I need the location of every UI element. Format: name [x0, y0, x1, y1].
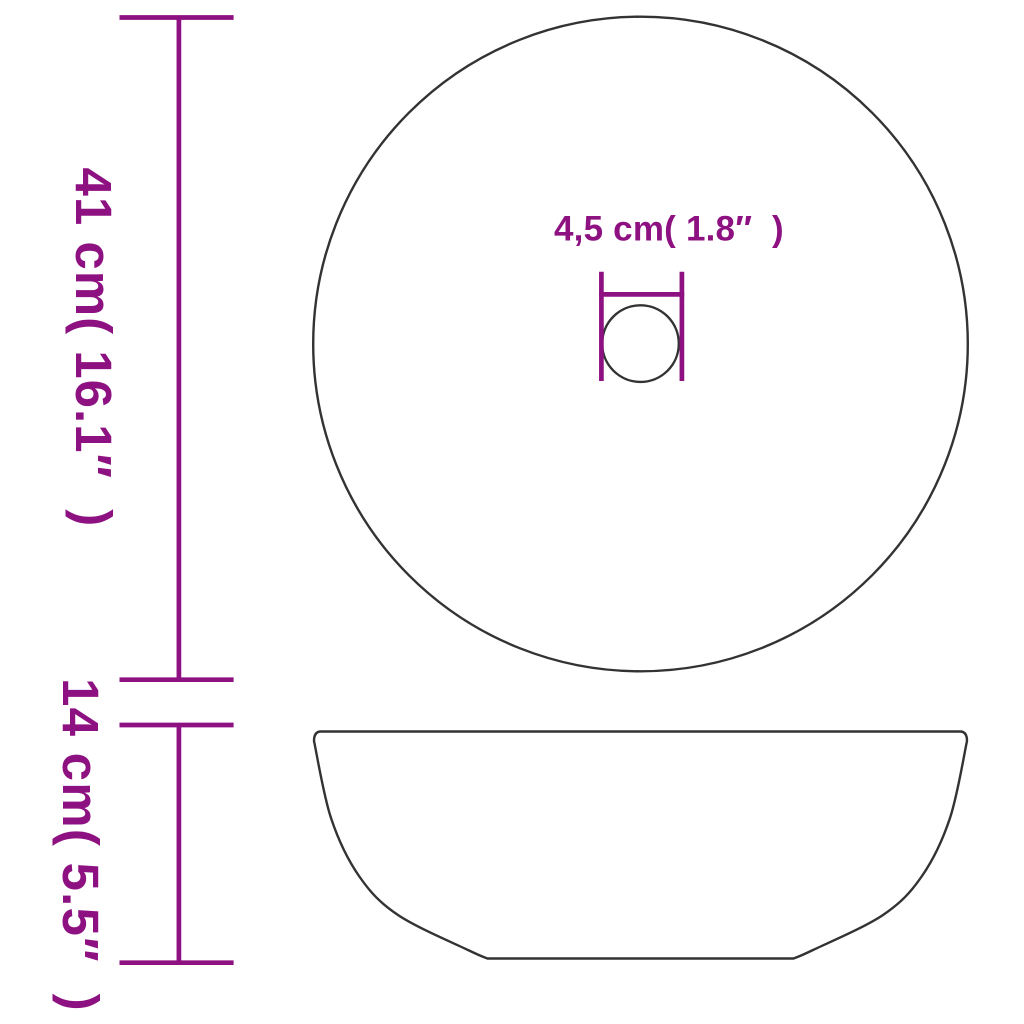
svg-text:41 cm( 16.1″ ): 41 cm( 16.1″ ) — [65, 168, 122, 528]
svg-text:14 cm( 5.5″ ): 14 cm( 5.5″ ) — [52, 678, 109, 1012]
svg-text:4,5 cm( 1.8″ ): 4,5 cm( 1.8″ ) — [554, 210, 784, 249]
